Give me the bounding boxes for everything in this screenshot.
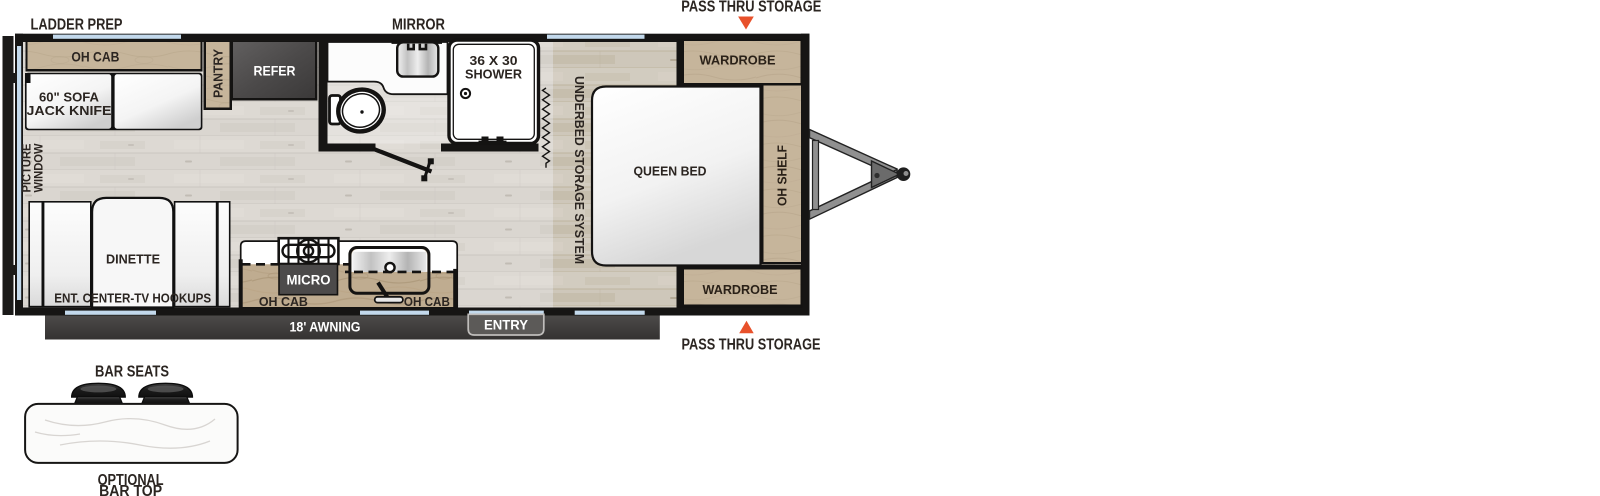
svg-text:PASS THRU STORAGE: PASS THRU STORAGE	[681, 0, 821, 16]
svg-text:MIRROR: MIRROR	[392, 17, 445, 34]
svg-text:ENTRY: ENTRY	[484, 316, 529, 332]
svg-text:OH SHELF: OH SHELF	[775, 145, 790, 206]
svg-text:18' AWNING: 18' AWNING	[290, 320, 361, 335]
svg-text:PICTUREWINDOW: PICTUREWINDOW	[20, 143, 46, 193]
svg-text:BAR TOP: BAR TOP	[99, 483, 162, 496]
svg-text:UNDERBED STORAGE SYSTEM: UNDERBED STORAGE SYSTEM	[572, 76, 587, 264]
svg-text:PASS THRU STORAGE: PASS THRU STORAGE	[682, 337, 821, 354]
svg-text:DINETTE: DINETTE	[106, 252, 160, 267]
svg-text:MICRO: MICRO	[287, 273, 331, 288]
svg-text:WARDROBE: WARDROBE	[703, 282, 778, 297]
svg-text:36 X 30: 36 X 30	[470, 53, 518, 68]
svg-text:QUEEN BED: QUEEN BED	[634, 163, 707, 178]
svg-text:WARDROBE: WARDROBE	[700, 53, 776, 68]
svg-text:SHOWER: SHOWER	[465, 67, 522, 82]
svg-text:PANTRY: PANTRY	[211, 49, 226, 98]
svg-text:OH CAB: OH CAB	[404, 294, 450, 309]
svg-text:BAR SEATS: BAR SEATS	[95, 363, 169, 380]
svg-text:REFER: REFER	[254, 64, 296, 79]
svg-text:OH CAB: OH CAB	[259, 294, 308, 309]
svg-text:ENT. CENTER-TV HOOKUPS: ENT. CENTER-TV HOOKUPS	[54, 290, 211, 305]
svg-text:LADDER PREP: LADDER PREP	[31, 17, 123, 34]
svg-text:JACK KNIFE: JACK KNIFE	[27, 103, 112, 118]
svg-text:OH CAB: OH CAB	[71, 50, 119, 65]
